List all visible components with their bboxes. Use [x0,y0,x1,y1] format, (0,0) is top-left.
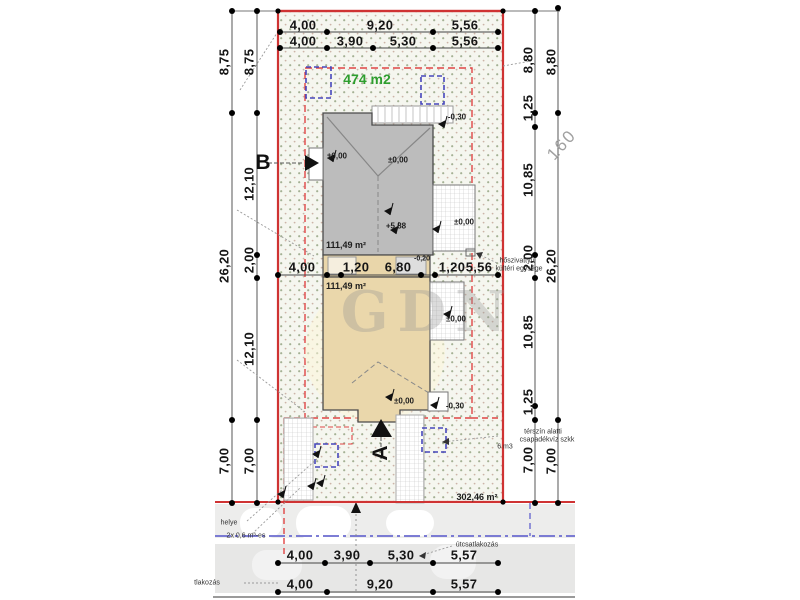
level-label: ±0,00 [446,315,466,324]
dim-label: 3,90 [337,34,364,49]
dim-label: 8,80 [521,47,536,74]
watermark-text: GDN [341,279,516,345]
walkway-paving [396,415,424,503]
dim-label: 8,80 [544,49,559,76]
dim-label: 5,30 [390,34,417,49]
dim-label: 8,75 [217,49,232,76]
level-label: ±0,00 [454,218,474,227]
level-label: ±0,00 [394,397,414,406]
soakaway-note: térszín alatti [524,429,562,436]
building-area-label: 111,49 m² [326,240,366,250]
dim-label: 4,00 [290,18,317,33]
dim-label: 5,56 [452,18,479,33]
level-label: -0,20 [414,256,430,263]
watermark-blob [296,506,351,540]
dim-label: 12,10 [242,332,257,366]
level-label: -0,30 [446,402,464,411]
level-label: ±0,00 [327,152,347,161]
dim-label: 6,80 [385,260,412,275]
dim-label: 8,75 [242,49,257,76]
section-a-letter: A [369,445,393,460]
driveway-paving [284,418,313,500]
soakaway-note: 6 m3 [497,444,513,451]
level-label: -0,30 [448,113,466,122]
section-b-letter: B [255,151,270,175]
road-connection-note: útcsatlakozás [456,542,498,549]
dim-label: 5,56 [452,34,479,49]
soakaway-note: csapadékvíz szkk [520,437,575,444]
dim-label: 2,00 [242,247,257,274]
dim-label: 1,20 [439,260,466,275]
dim-label: 4,00 [287,577,314,592]
dim-label: 12,10 [242,167,257,201]
dim-label: 7,00 [544,448,559,475]
utility-connection-note: tlakozás [194,580,220,587]
level-label: ±0,00 [388,156,408,165]
dim-label: 4,00 [289,260,316,275]
dim-label: 1,20 [343,260,370,275]
dim-label: 10,85 [521,163,536,197]
level-label: +5,88 [386,222,406,231]
heat-pump-note: hőszivattyú [499,258,534,265]
dim-label: 5,57 [451,577,478,592]
dim-label: 5,57 [451,548,478,563]
dim-label: 5,30 [388,548,415,563]
building-area-label: 111,49 m² [326,281,366,291]
bin-store-note: helye [221,520,238,527]
bin-store-note: 2x 0,6 m³-es [227,533,266,540]
dim-label: 7,00 [521,447,536,474]
site-plan-page: GDN 4,00 9,20 5,56 4,00 3,90 5,30 5,56 4… [0,0,800,600]
dim-label: 7,00 [242,448,257,475]
site-area-label: 474 m2 [343,71,390,87]
dim-label: 9,20 [367,18,394,33]
dim-label: 7,00 [217,448,232,475]
dim-label: 4,00 [290,34,317,49]
dim-label: 26,20 [217,249,232,283]
remaining-area-label: 302,46 m² [456,492,497,502]
dim-label: 9,20 [367,577,394,592]
dim-label: 26,20 [544,249,559,283]
dim-label: 1,25 [521,95,536,122]
dim-label: 1,25 [521,389,536,416]
heat-pump-note: kültéri egysége [495,266,542,273]
dim-label: 4,00 [287,548,314,563]
dim-label: 5,56 [466,260,493,275]
dim-label: 3,90 [334,548,361,563]
dim-label: 10,85 [521,315,536,349]
watermark-blob [386,510,434,536]
